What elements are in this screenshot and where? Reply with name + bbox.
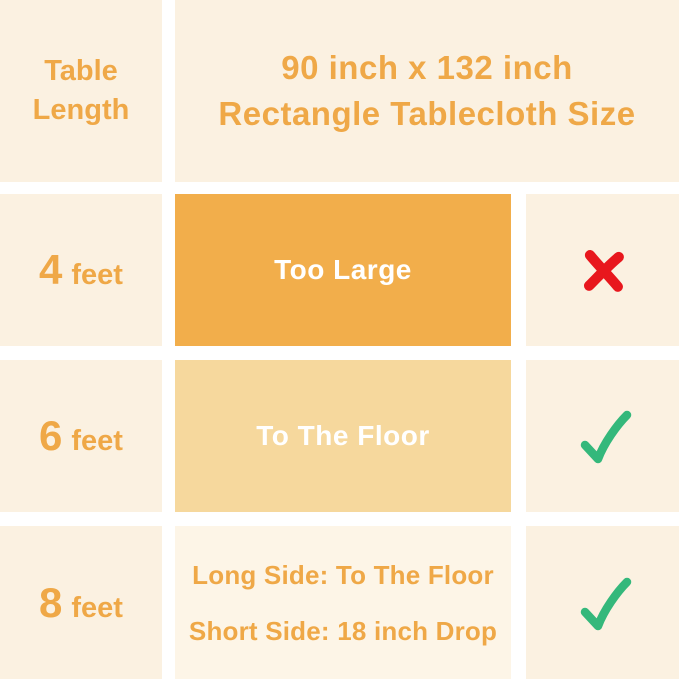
row-8ft-fit-label: Long Side: To The Floor Short Side: 18 i… [189,547,497,659]
header-cell-title: 90 inch x 132 inch Rectangle Tablecloth … [175,0,679,182]
chart-title-line2: Rectangle Tablecloth Size [218,91,635,137]
row-6ft-length-label: 6feet [39,412,123,460]
column-header-table-length: Table Length [33,52,130,130]
row-6ft-verdict-cell [526,360,679,512]
row-8ft-length-cell: 8feet [0,526,162,679]
row-8ft-length-unit: feet [71,592,123,624]
row-6ft-fit-cell: To The Floor [175,360,511,512]
row-8ft-length-value: 8 [39,579,62,626]
row-8ft-length-label: 8feet [39,579,123,627]
row-6ft-length-unit: feet [71,425,123,457]
row-6ft-length-cell: 6feet [0,360,162,512]
table-length-line2: Length [33,91,130,130]
table-length-line1: Table [33,52,130,91]
row-4ft-length-unit: feet [71,259,123,291]
row-4ft-fit-label: Too Large [274,254,412,286]
header-cell-table-length: Table Length [0,0,162,182]
row-6ft-fit-label: To The Floor [256,420,429,452]
row-8ft-fit-line1: Long Side: To The Floor [189,547,497,603]
row-4ft-fit-cell: Too Large [175,194,511,346]
check-mark-icon [573,406,633,466]
row-8ft-fit-cell: Long Side: To The Floor Short Side: 18 i… [175,526,511,679]
row-8ft-fit-line2: Short Side: 18 inch Drop [189,603,497,659]
x-mark-icon [577,244,629,296]
row-4ft-verdict-cell [526,194,679,346]
tablecloth-size-chart: Table Length 90 inch x 132 inch Rectangl… [0,0,679,679]
row-6ft-length-value: 6 [39,412,62,459]
check-mark-icon [573,573,633,633]
row-8ft-verdict-cell [526,526,679,679]
row-4ft-length-label: 4feet [39,246,123,294]
row-4ft-length-cell: 4feet [0,194,162,346]
row-4ft-length-value: 4 [39,246,62,293]
chart-title: 90 inch x 132 inch Rectangle Tablecloth … [218,45,635,137]
chart-title-line1: 90 inch x 132 inch [218,45,635,91]
